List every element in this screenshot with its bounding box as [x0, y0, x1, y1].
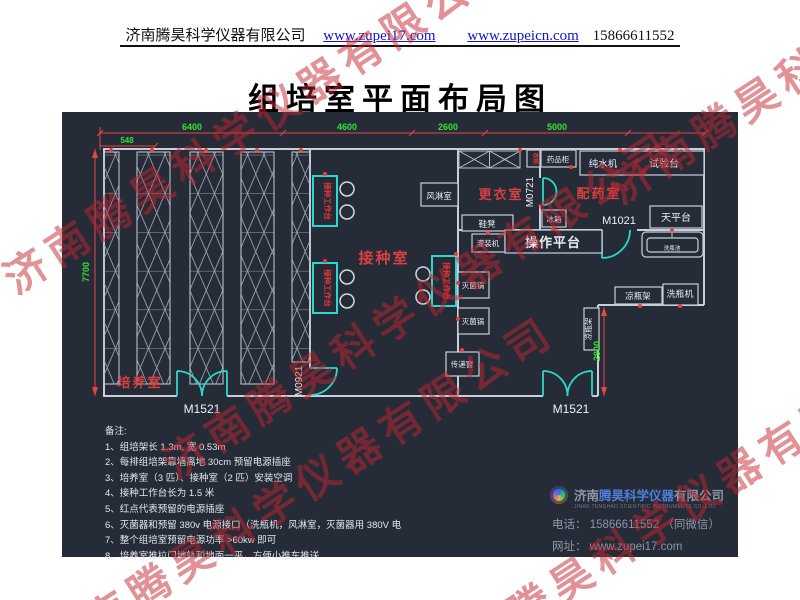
room-dispensing: 配药室 — [576, 186, 621, 201]
page: 济南腾昊科学仪器有限公司 www.zupei17.com www.zupeicn… — [0, 0, 800, 600]
footer-phone: 电话： 15866611552 （同微信） — [552, 516, 728, 532]
header-rule — [120, 45, 680, 47]
room-culture: 培养室 — [117, 375, 162, 390]
stools — [340, 182, 430, 308]
dim-5000: 5000 — [547, 122, 567, 132]
note-item: 5、红点代表预留的电源插座 — [105, 503, 401, 517]
door-m0721 — [543, 178, 557, 205]
note-item: 8、培养室推拉门地轨和地面一平，方便小推车推送. — [105, 550, 401, 564]
note-item: 4、接种工作台长为 1.5 米 — [105, 487, 401, 501]
culture-rack — [292, 152, 310, 362]
label-sterilizer: 灭菌锅 — [462, 316, 485, 326]
label-operation-platform: 操作平台 — [525, 235, 581, 250]
header-phone: 15866611552 — [593, 28, 675, 44]
label-inoculation-bench: 接种工作台 — [323, 182, 333, 220]
stool — [340, 294, 354, 308]
room-inoculation: 接种室 — [358, 249, 409, 267]
label-inoculation-bench: 接种工作台 — [323, 269, 333, 307]
stool — [340, 182, 354, 196]
note-item: 2、每排组培架靠墙离地 30cm 预留电源插座 — [105, 456, 401, 470]
note-item: 6、灭菌器和预留 380v 电源接口（洗瓶机，风淋室，灭菌器用 380V 电 — [105, 519, 401, 533]
header-line: 济南腾昊科学仪器有限公司 www.zupei17.com www.zupeicn… — [0, 24, 800, 45]
label-wardrobe: 衣柜 — [532, 152, 540, 164]
label-water-machine: 纯水机 — [589, 158, 618, 170]
label-air-shower: 风淋室 — [426, 191, 452, 201]
link-zupei17[interactable]: www.zupei17.com — [323, 28, 435, 44]
brand-box: 济南腾昊科学仪器有限公司 JINAN TENGHAO SCIENTIFIC IN… — [550, 485, 728, 554]
note-item: 1、组培架长 1.3m, 宽 0.53m — [105, 441, 401, 455]
label-fridge: 冰箱 — [547, 214, 562, 224]
label-m1521-right: M1521 — [553, 402, 590, 416]
company-logo-icon — [550, 486, 568, 504]
stool — [340, 270, 354, 284]
brand-mid: 腾昊科学仪器 — [599, 489, 674, 503]
label-m1021: M1021 — [602, 215, 636, 227]
label-pass-window: 传递窗 — [451, 359, 474, 369]
culture-rack — [241, 152, 274, 384]
culture-rack — [104, 152, 119, 384]
notes-title: 备注: — [105, 425, 401, 439]
company-name: 济南腾昊科学仪器有限公司 — [125, 28, 305, 44]
label-sink: 洗瓶池 — [664, 244, 681, 252]
equipment-labels: 风淋室 药品柜 纯水机 试验台 天平台 冰箱 鞋凳 灌装机 操作平台 灭菌锅 灭… — [426, 154, 693, 369]
stool — [416, 290, 430, 304]
dim-548: 548 — [120, 136, 134, 145]
label-bottle-washer: 洗瓶机 — [666, 288, 693, 299]
notes: 备注: 1、组培架长 1.3m, 宽 0.53m 2、每排组培架靠墙离地 30c… — [105, 425, 401, 565]
label-m0921: M0921 — [294, 365, 305, 396]
brand-name: 济南腾昊科学仪器有限公司 — [574, 485, 724, 504]
brand-name-en: JINAN TENGHAO SCIENTIFIC INSTRUMENTS CO.… — [574, 504, 728, 510]
label-sterilizer: 灭菌锅 — [462, 280, 485, 290]
cad-panel: 548 6400 4600 2600 5000 7700 2900 培养室 接种… — [62, 112, 738, 557]
link-zupeicn[interactable]: www.zupeicn.com — [467, 28, 579, 44]
stool — [340, 205, 354, 219]
floor-plan: 548 6400 4600 2600 5000 7700 2900 培养室 接种… — [62, 112, 738, 422]
dim-6400: 6400 — [182, 122, 202, 132]
wardrobe-rack — [459, 151, 520, 168]
brand-suffix: 有限公司 — [674, 489, 724, 503]
door-m1021 — [602, 230, 630, 258]
double-door-m1521-right — [543, 371, 592, 396]
label-filling-machine: 灌装机 — [477, 238, 500, 248]
note-item: 3、培养室（3 匹）、接种室（2 匹）安装空调 — [105, 472, 401, 486]
label-shoe-bench: 鞋凳 — [478, 219, 496, 229]
culture-rack — [190, 152, 223, 384]
label-balance-table: 天平台 — [661, 211, 691, 224]
dim-2600: 2600 — [438, 122, 458, 132]
stool — [416, 267, 430, 281]
note-item: 7、整个组培室预留电源功率 >60kw 即可 — [105, 534, 401, 548]
brand-prefix: 济南 — [574, 489, 599, 503]
label-m0721: M0721 — [525, 176, 536, 207]
room-changing: 更衣室 — [478, 187, 523, 202]
dim-2900: 2900 — [592, 341, 602, 361]
label-medicine-cabinet: 药品柜 — [547, 154, 570, 164]
label-bottle-rack: 凉瓶架 — [625, 291, 651, 301]
dim-7700: 7700 — [81, 262, 91, 282]
label-m1521-left: M1521 — [184, 402, 221, 416]
dim-4600: 4600 — [337, 122, 357, 132]
equipment — [421, 150, 704, 376]
footer-website[interactable]: 网址： www.zupei17.com — [552, 538, 728, 554]
culture-rack — [137, 152, 170, 384]
door-m0921 — [310, 368, 337, 395]
culture-racks — [104, 152, 310, 384]
label-bottle-rack-vertical: 凉瓶架 — [583, 317, 593, 340]
label-inoculation-bench: 接种工作台 — [442, 262, 452, 300]
label-test-bench: 试验台 — [649, 157, 679, 170]
